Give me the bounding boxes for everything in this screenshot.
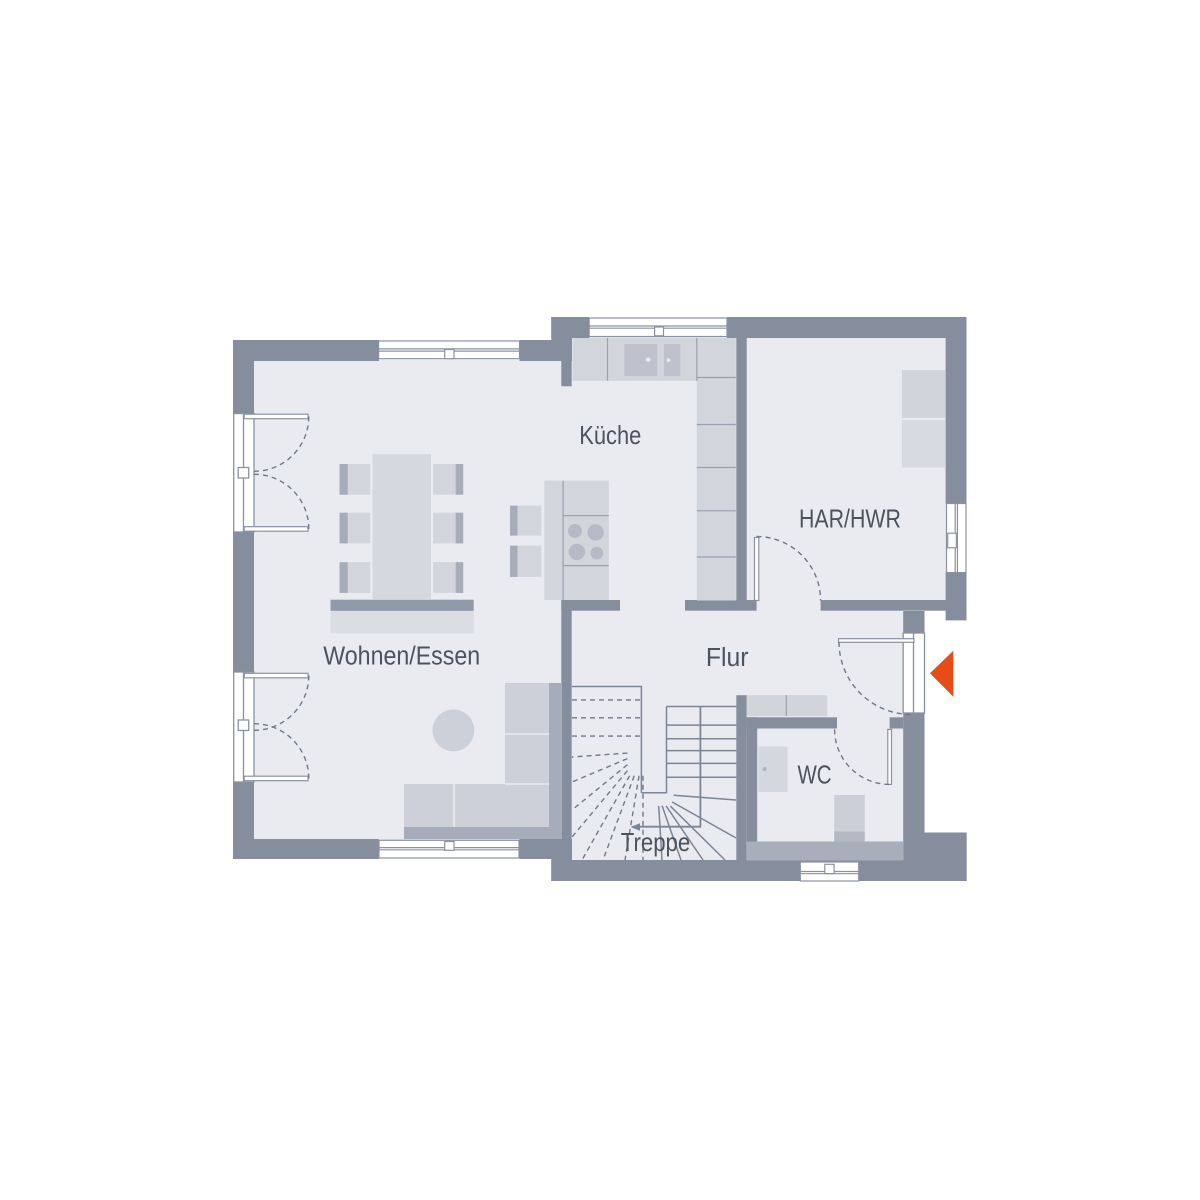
svg-text:Wohnen/Essen: Wohnen/Essen [323,642,480,670]
svg-text:Treppe: Treppe [621,828,691,857]
svg-text:HAR/HWR: HAR/HWR [799,505,901,535]
svg-text:Küche: Küche [579,421,641,450]
svg-text:Flur: Flur [706,643,749,672]
svg-text:WC: WC [798,760,832,789]
